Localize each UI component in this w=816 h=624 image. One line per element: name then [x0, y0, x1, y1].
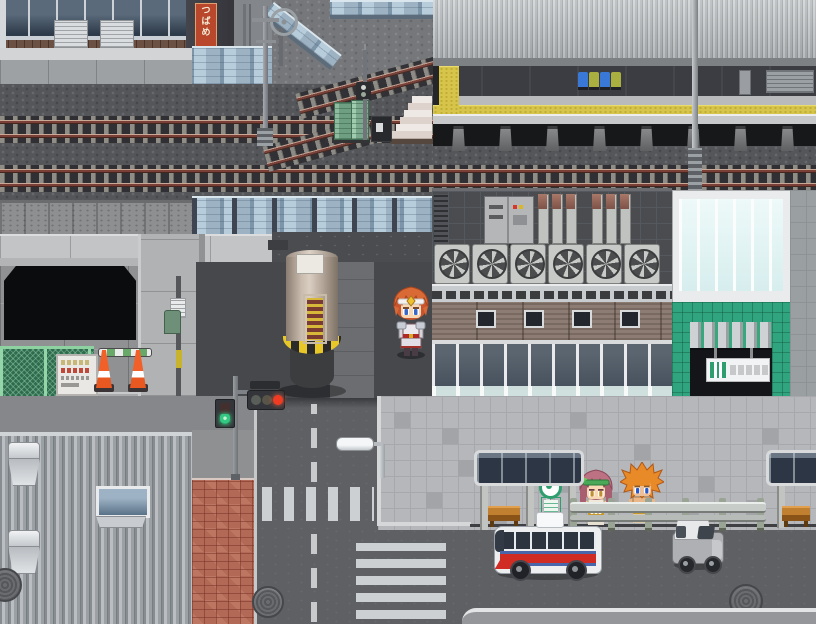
- roof-edge-louvers: [432, 284, 672, 304]
- bus-wheel: [510, 560, 531, 581]
- small-window: [476, 310, 496, 328]
- valve-wheel: [270, 8, 298, 36]
- bench-leg: [804, 521, 808, 527]
- platform-floor: [433, 96, 816, 105]
- platform-vent-grille: [766, 70, 814, 93]
- ped-lens-walk: [220, 414, 230, 424]
- small-window: [572, 310, 592, 328]
- platform-back-wall: [433, 66, 816, 98]
- relay-box: [371, 116, 392, 142]
- wheel-hub: [683, 561, 688, 566]
- roof-vent-hood: [8, 530, 40, 548]
- roof-fan: [548, 244, 584, 284]
- pole-base: [231, 474, 240, 480]
- bench-leg: [784, 521, 788, 527]
- roof-pipe: [620, 194, 631, 244]
- utility-pole: [176, 276, 181, 396]
- ac-unit: [100, 20, 134, 48]
- notice-row: [61, 376, 89, 380]
- street-lamp-head: [336, 437, 374, 451]
- stair-step[interactable]: [392, 131, 432, 139]
- sign-text-block: [738, 365, 744, 375]
- pipe-cap: [552, 194, 561, 209]
- window-band-upper: [432, 340, 672, 390]
- plaza-accent-tiles: [394, 412, 410, 428]
- pipe-cap: [538, 194, 547, 209]
- hydrant[interactable]: [164, 310, 181, 334]
- signal-lens: [361, 85, 366, 90]
- roof-pipe: [592, 194, 603, 244]
- crosswalk-west: [262, 487, 374, 521]
- fan-blades: [553, 249, 583, 279]
- pipe-cap: [606, 194, 615, 209]
- viaduct-parapet: [0, 200, 192, 237]
- platform-pillar: [734, 126, 747, 151]
- noise-barrier: [192, 46, 272, 88]
- bus[interactable]: [492, 512, 604, 584]
- bus-shelter-roof: [474, 450, 584, 486]
- indicator-light: [513, 205, 517, 209]
- van-wheel: [704, 556, 722, 574]
- roof-pipe: [538, 194, 549, 244]
- fan-blades: [591, 249, 621, 279]
- underpass-opening[interactable]: [4, 266, 136, 340]
- bus-windshield: [495, 530, 504, 552]
- banner-char-2: ば: [196, 17, 216, 28]
- ped-lens-off: [220, 403, 230, 413]
- traffic-cone[interactable]: [128, 350, 148, 392]
- fan-blades: [439, 249, 469, 279]
- roof-fan: [510, 244, 546, 284]
- roof-fan: [472, 244, 508, 284]
- tactile-paving: [439, 66, 459, 115]
- platform-pillar: [546, 126, 559, 151]
- ballast: [0, 143, 433, 165]
- pole-marker: [176, 350, 182, 368]
- cabinet-panel: [513, 215, 527, 225]
- roof-fan: [434, 244, 470, 284]
- west-sidewalk: [192, 430, 256, 480]
- vertical-banner-sign[interactable]: つ ば め: [195, 3, 217, 49]
- cone-body: [96, 350, 112, 388]
- notice-board[interactable]: [56, 354, 98, 396]
- street-lamp-pole: [380, 444, 385, 478]
- platform-seat[interactable]: [600, 72, 610, 90]
- wall-pipe: [243, 4, 246, 48]
- roof-fan: [586, 244, 622, 284]
- brick-pavement: [192, 478, 254, 624]
- platform-pillar: [499, 126, 512, 151]
- electrical-cabinets[interactable]: [484, 196, 534, 244]
- van-rear-window: [676, 526, 686, 538]
- pipe-cap: [620, 194, 629, 209]
- notice-row: [61, 360, 89, 365]
- traffic-lens-off: [251, 395, 261, 405]
- pole-lattice-base: [257, 128, 273, 146]
- game-viewport: つ ば め: [0, 0, 816, 624]
- pole-lattice-base: [688, 148, 702, 192]
- banner-char-1: つ: [196, 6, 216, 17]
- lane-dashes: [311, 528, 317, 622]
- crosswalk-south: [356, 543, 446, 619]
- utility-box[interactable]: [334, 102, 352, 140]
- traffic-lens-red: [273, 395, 283, 405]
- platform-seat[interactable]: [611, 72, 621, 90]
- ac-unit: [54, 20, 88, 48]
- notice-row: [61, 368, 89, 373]
- wheel-hub: [709, 561, 714, 566]
- banner-char-3: め: [196, 28, 216, 39]
- pedestrian-signal[interactable]: [215, 399, 235, 428]
- wheel-hub: [572, 566, 578, 572]
- platform-underside: [433, 124, 816, 146]
- manhole: [252, 586, 284, 618]
- van-windshield: [697, 526, 715, 539]
- barrier-posts: [192, 198, 433, 236]
- roof-pipe: [606, 194, 617, 244]
- cabinet-slot: [489, 205, 503, 209]
- fan-blades: [477, 249, 507, 279]
- sign-text-block: [754, 365, 760, 375]
- traffic-lens-off: [262, 395, 272, 405]
- fan-blades: [515, 249, 545, 279]
- bus-roof-box: [536, 512, 564, 528]
- signal-lens: [361, 92, 366, 97]
- pipe-cap: [566, 194, 575, 209]
- window-sill: [96, 516, 146, 528]
- warehouse-window: [96, 486, 150, 518]
- lane-dashes: [311, 404, 317, 482]
- cabinet-slot: [489, 215, 503, 219]
- curtain-wall-glass: [679, 199, 783, 291]
- platform-pillar: [781, 126, 794, 151]
- hero-character[interactable]: [388, 282, 434, 360]
- relay-box-label: [376, 123, 383, 132]
- sign-text-block: [762, 365, 768, 375]
- catenary-crossarm: [256, 40, 276, 43]
- bus-windows: [500, 532, 596, 549]
- curtain-wall-frame: [672, 190, 792, 304]
- wall-pipe: [249, 4, 251, 48]
- pillar-base: [290, 350, 334, 388]
- traffic-light-back: [250, 381, 280, 389]
- indicator-light: [519, 205, 523, 209]
- fence-top: [330, 0, 433, 19]
- catenary-pole: [263, 6, 268, 146]
- back-building-pilaster: [0, 0, 6, 48]
- south-sidewalk: [462, 608, 816, 624]
- traffic-light[interactable]: [247, 390, 285, 410]
- platform-roof: [433, 0, 816, 62]
- traffic-cone[interactable]: [94, 350, 114, 392]
- roof-vent-chute: [8, 458, 40, 486]
- roof-fan: [624, 244, 660, 284]
- platform-door[interactable]: [739, 70, 751, 95]
- platform-pillar: [452, 126, 465, 151]
- platform-seat[interactable]: [578, 72, 588, 90]
- roof-pipe: [566, 194, 577, 244]
- platform-pillar: [593, 126, 606, 151]
- fan-blades: [629, 249, 659, 279]
- back-building-brick-band: [0, 40, 186, 48]
- van-wheel: [678, 556, 696, 574]
- pillar-warning-sign[interactable]: [303, 294, 327, 344]
- notice-row: [61, 383, 79, 387]
- wheel-hub: [516, 566, 522, 572]
- cone-body: [130, 350, 146, 388]
- bus-shelter-roof: [766, 450, 816, 486]
- hanging-station-sign[interactable]: [706, 358, 770, 382]
- sign-text-block: [746, 365, 752, 375]
- sign-text-block: [730, 365, 736, 375]
- roof-vent-hood: [8, 442, 40, 460]
- roof-pipe: [552, 194, 563, 244]
- bus-wheel: [566, 560, 587, 581]
- pipe-cap: [592, 194, 601, 209]
- catenary-crossarm: [252, 18, 279, 22]
- railway-signal-head[interactable]: [356, 82, 371, 99]
- entrance-louver-band: [690, 322, 772, 350]
- small-window: [620, 310, 640, 328]
- platform-seat[interactable]: [589, 72, 599, 90]
- small-window: [524, 310, 544, 328]
- van[interactable]: [668, 518, 726, 574]
- curb-line: [377, 522, 471, 526]
- platform-pillar: [640, 126, 653, 151]
- ballast: [433, 146, 816, 165]
- station-logo-icon: [710, 362, 726, 378]
- pillar-plate: [296, 254, 324, 274]
